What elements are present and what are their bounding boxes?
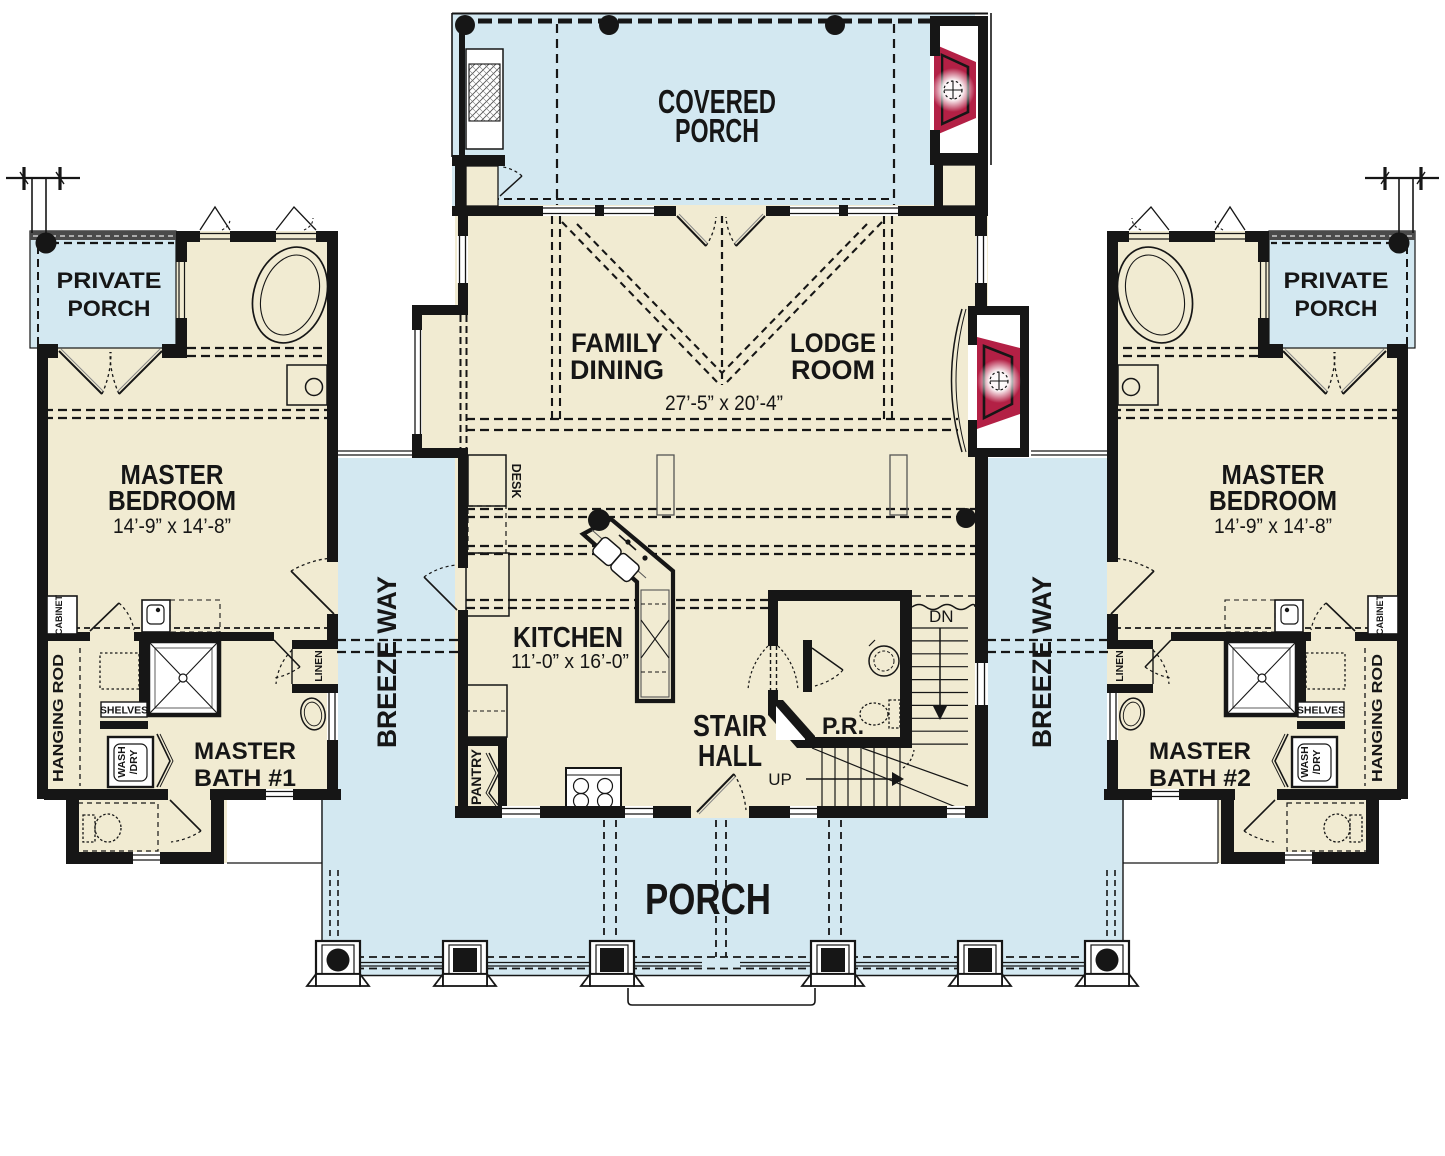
svg-text:14’-9” x 14’-8”: 14’-9” x 14’-8” [1214,514,1332,538]
svg-text:27’-5” x 20’-4”: 27’-5” x 20’-4” [665,392,783,415]
svg-text:BATH #1: BATH #1 [194,765,296,792]
svg-text:MASTER: MASTER [194,738,296,765]
svg-text:11’-0” x 16’-0”: 11’-0” x 16’-0” [511,651,629,673]
svg-text:LINEN: LINEN [1114,650,1126,682]
svg-text:LODGE: LODGE [790,328,876,358]
svg-text:PORCH: PORCH [68,296,151,321]
svg-text:WASH: WASH [116,746,128,778]
svg-text:BATH #2: BATH #2 [1149,765,1251,792]
svg-text:ROOM: ROOM [791,355,875,385]
svg-text:UP: UP [768,770,792,789]
svg-text:PORCH: PORCH [645,875,771,924]
svg-text:PORCH: PORCH [675,112,759,149]
svg-text:KITCHEN: KITCHEN [513,622,623,654]
svg-text:14’-9” x 14’-8”: 14’-9” x 14’-8” [113,514,231,538]
svg-text:PRIVATE: PRIVATE [1284,268,1389,293]
svg-text:PANTRY: PANTRY [468,748,484,805]
svg-text:CABINET: CABINET [54,594,64,635]
svg-text:WASH: WASH [1299,746,1311,778]
svg-text:DINING: DINING [570,355,664,385]
svg-text:FAMILY: FAMILY [571,328,663,358]
svg-text:/DRY: /DRY [128,750,140,775]
svg-text:HANGING ROD: HANGING ROD [1369,654,1386,782]
svg-text:BEDROOM: BEDROOM [1209,485,1337,516]
svg-text:/DRY: /DRY [1311,750,1323,775]
svg-text:SHELVES: SHELVES [1297,705,1345,717]
svg-text:HANGING ROD: HANGING ROD [50,654,67,782]
svg-text:CABINET: CABINET [1375,594,1385,635]
svg-text:MASTER: MASTER [1149,738,1251,765]
svg-text:PORCH: PORCH [1295,296,1378,321]
svg-text:BEDROOM: BEDROOM [108,485,236,516]
svg-text:SHELVES: SHELVES [100,705,148,717]
svg-text:LINEN: LINEN [313,650,325,682]
svg-text:DESK: DESK [509,464,523,499]
svg-text:PRIVATE: PRIVATE [57,268,162,293]
svg-text:BREEZE WAY: BREEZE WAY [1027,576,1057,748]
svg-text:DN: DN [929,607,954,626]
svg-text:BREEZE WAY: BREEZE WAY [372,576,402,748]
svg-text:P.R.: P.R. [822,713,864,740]
svg-text:HALL: HALL [698,738,762,773]
